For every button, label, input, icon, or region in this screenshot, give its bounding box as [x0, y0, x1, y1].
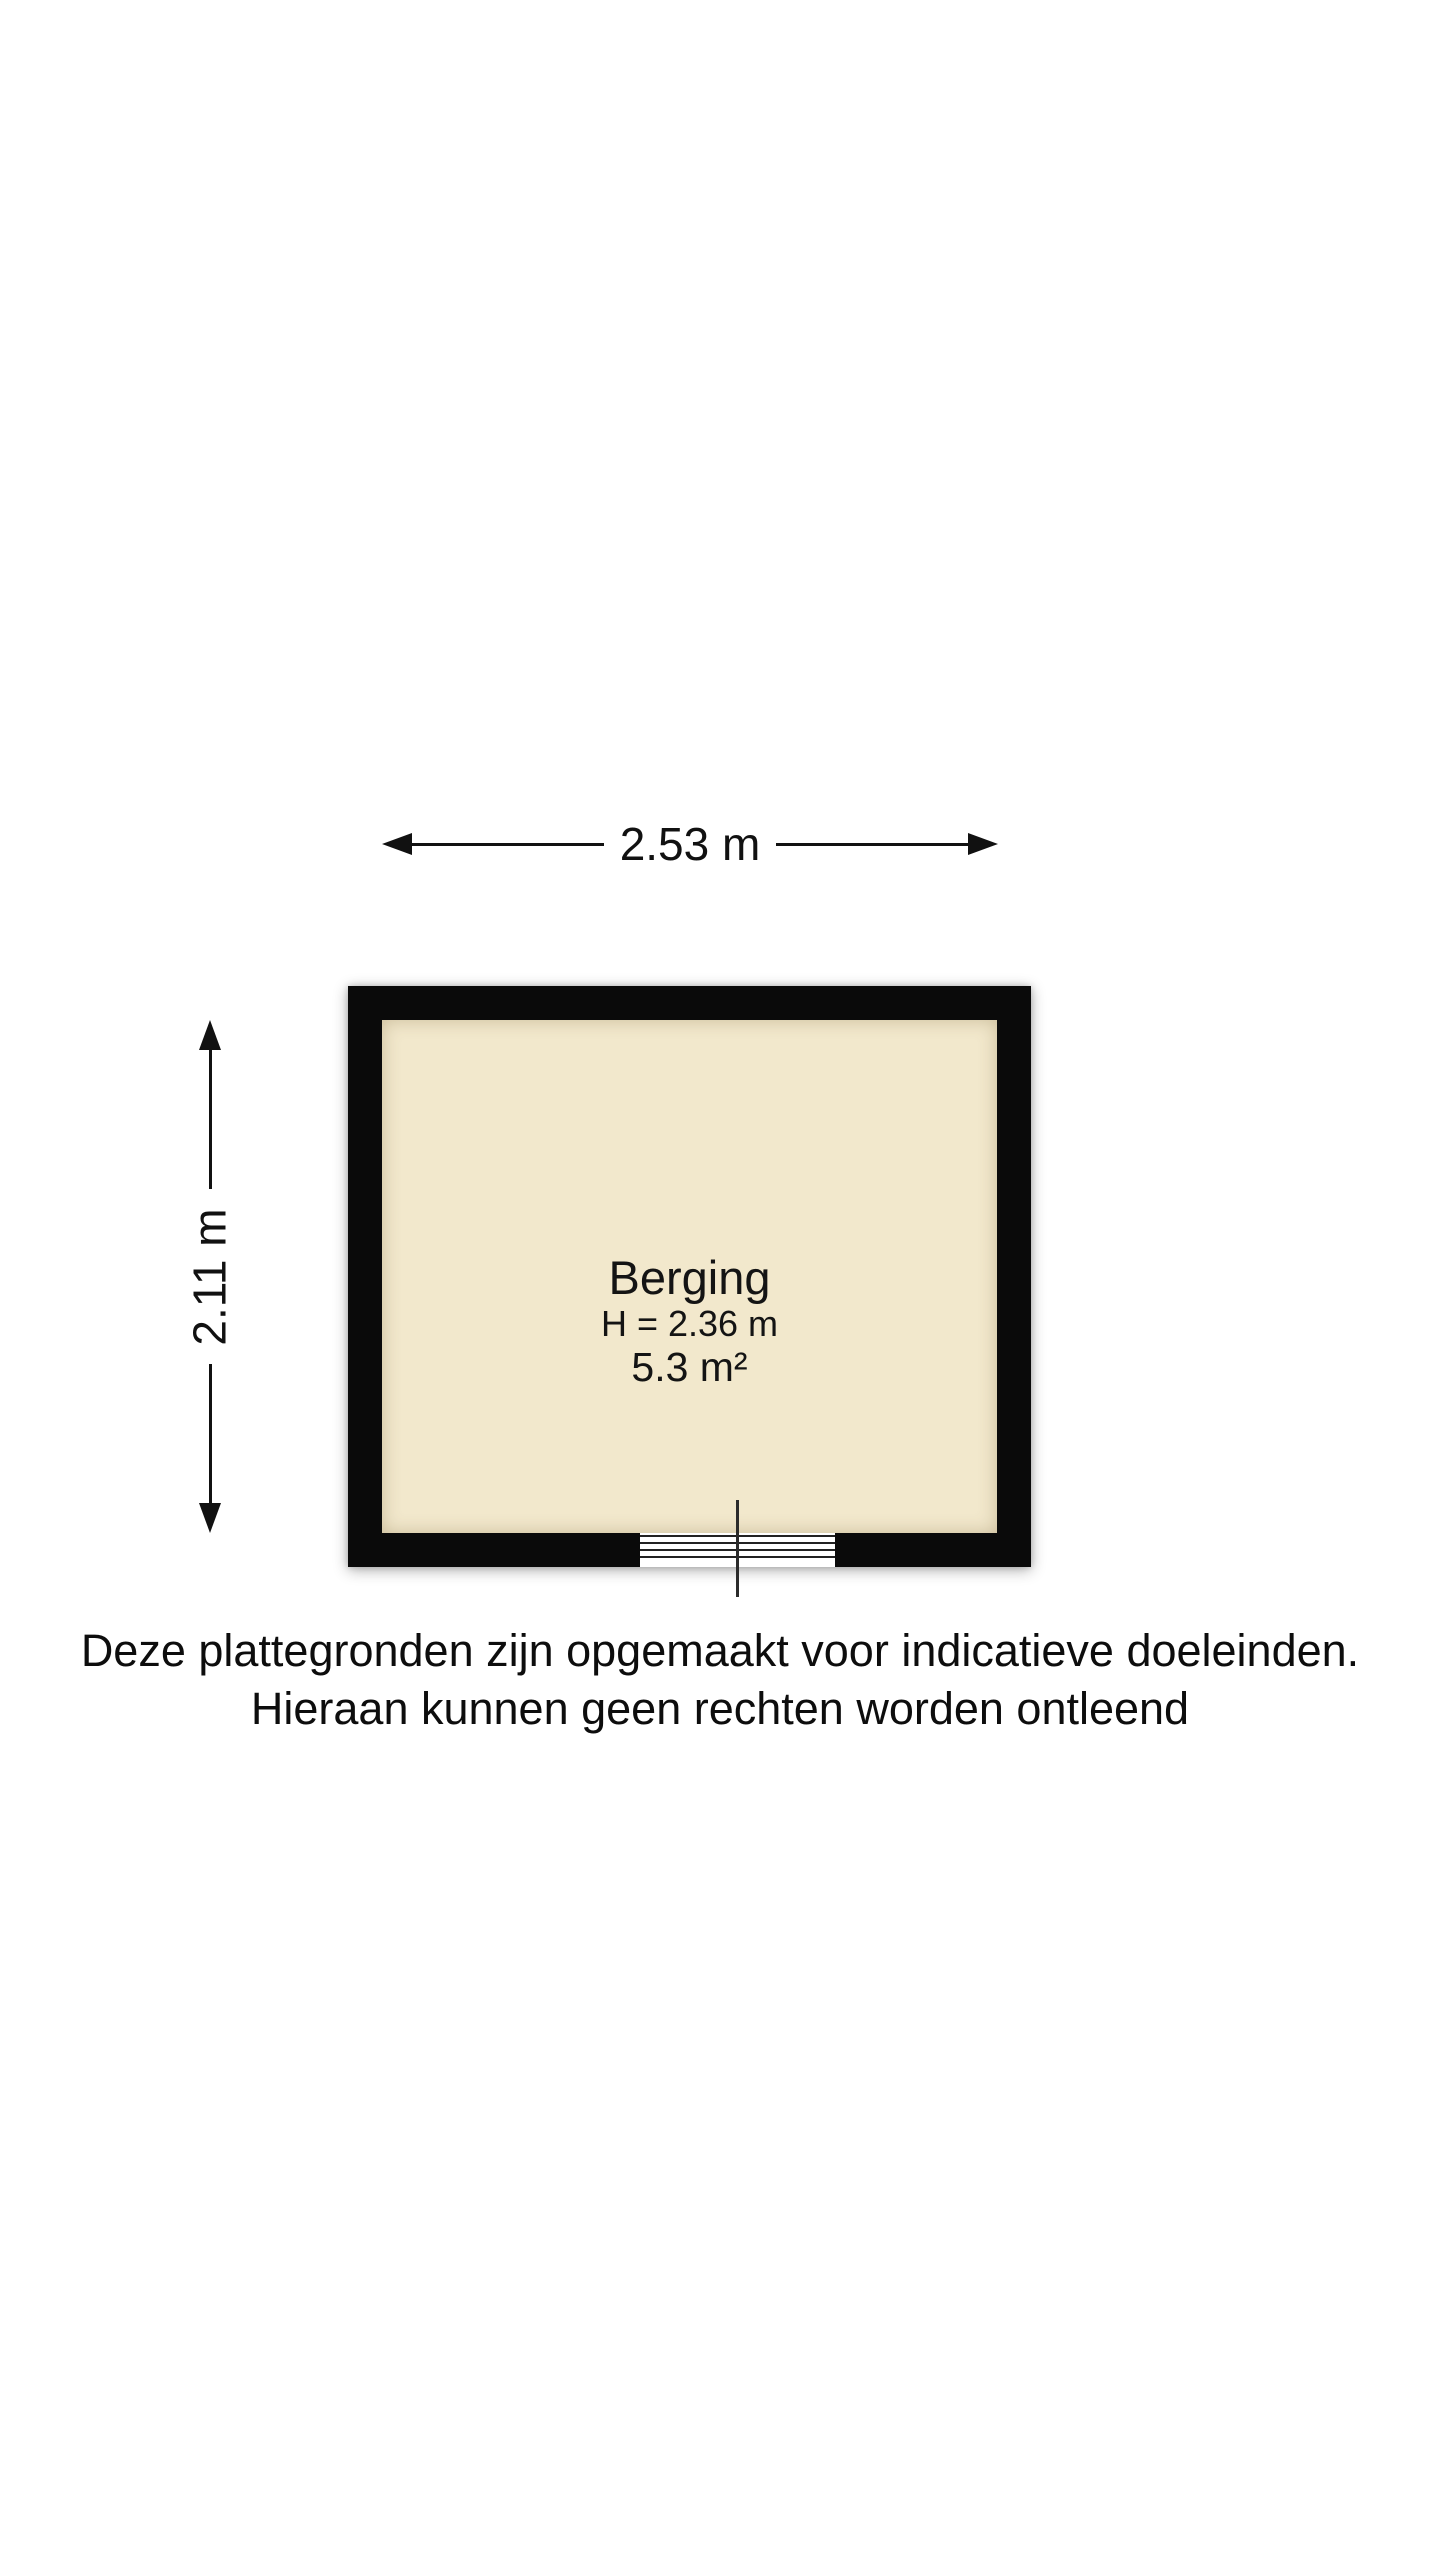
arrow-up-icon — [199, 1020, 221, 1050]
height-dimension-label: 2.11 m — [183, 1208, 237, 1345]
width-dimension-label: 2.53 m — [604, 817, 777, 871]
height-dimension-label-wrap: 2.11 m — [186, 1189, 234, 1364]
width-dimension: 2.53 m — [382, 820, 998, 868]
room-area: 5.3 m² — [382, 1344, 997, 1390]
dimension-line-right — [776, 843, 968, 846]
dimension-line-left — [412, 843, 604, 846]
room-label-block: Berging H = 2.36 m 5.3 m² — [382, 1252, 997, 1390]
arrow-right-icon — [968, 833, 998, 855]
window-center-line — [736, 1500, 739, 1597]
room-ceiling-height: H = 2.36 m — [382, 1304, 997, 1344]
dimension-line-top — [209, 1050, 212, 1189]
room-name: Berging — [382, 1252, 997, 1304]
floorplan-canvas: 2.53 m 2.11 m Berging H = 2.36 m 5.3 m² … — [0, 0, 1440, 2560]
room-berging: Berging H = 2.36 m 5.3 m² — [348, 986, 1031, 1567]
disclaimer: Deze plattegronden zijn opgemaakt voor i… — [0, 1622, 1440, 1738]
disclaimer-line-2: Hieraan kunnen geen rechten worden ontle… — [0, 1680, 1440, 1738]
arrow-down-icon — [199, 1503, 221, 1533]
arrow-left-icon — [382, 833, 412, 855]
disclaimer-line-1: Deze plattegronden zijn opgemaakt voor i… — [0, 1622, 1440, 1680]
dimension-line-bottom — [209, 1364, 212, 1503]
height-dimension: 2.11 m — [186, 1020, 234, 1533]
